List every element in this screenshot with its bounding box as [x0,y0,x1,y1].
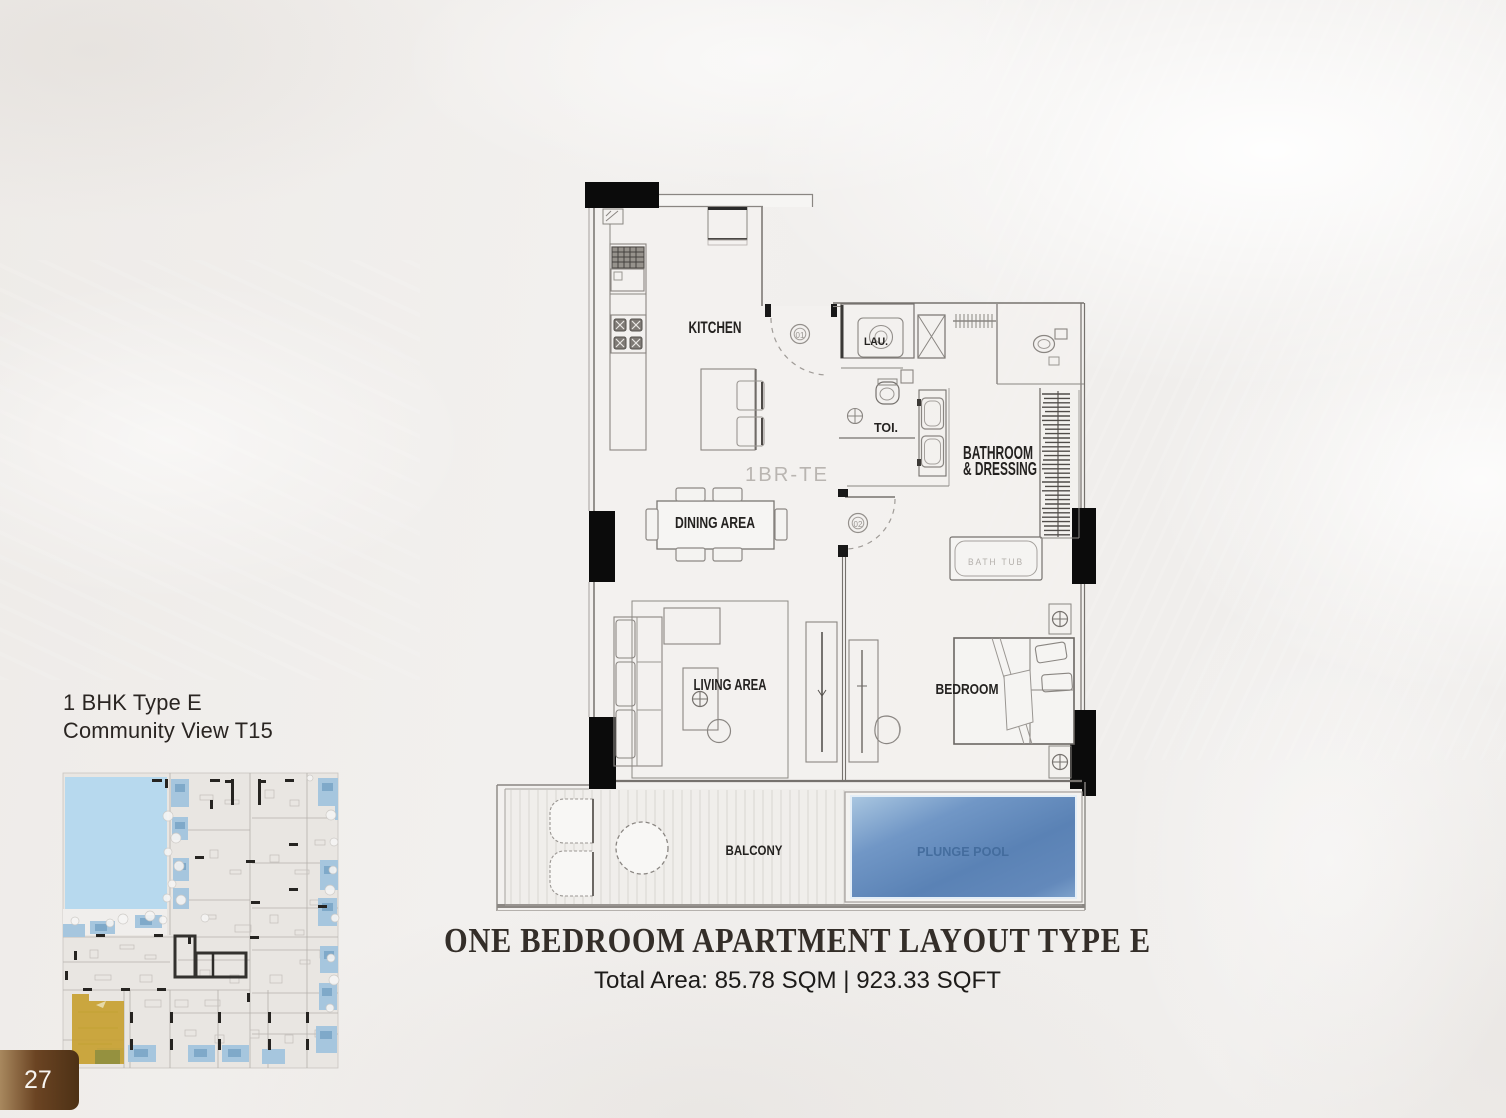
svg-text:& DRESSING: & DRESSING [963,459,1037,479]
svg-text:1BR-TE: 1BR-TE [745,464,829,486]
svg-text:TOI.: TOI. [874,420,898,435]
svg-text:KITCHEN: KITCHEN [689,318,742,337]
svg-text:01: 01 [796,331,805,340]
svg-text:02: 02 [854,520,863,529]
svg-text:PLUNGE POOL: PLUNGE POOL [917,844,1009,859]
svg-text:BALCONY: BALCONY [726,842,784,858]
svg-text:DINING AREA: DINING AREA [675,515,755,532]
svg-text:LAU.: LAU. [864,336,888,348]
svg-text:BATH TUB: BATH TUB [968,557,1024,567]
svg-text:LIVING AREA: LIVING AREA [694,677,767,694]
svg-text:BEDROOM: BEDROOM [936,681,999,698]
